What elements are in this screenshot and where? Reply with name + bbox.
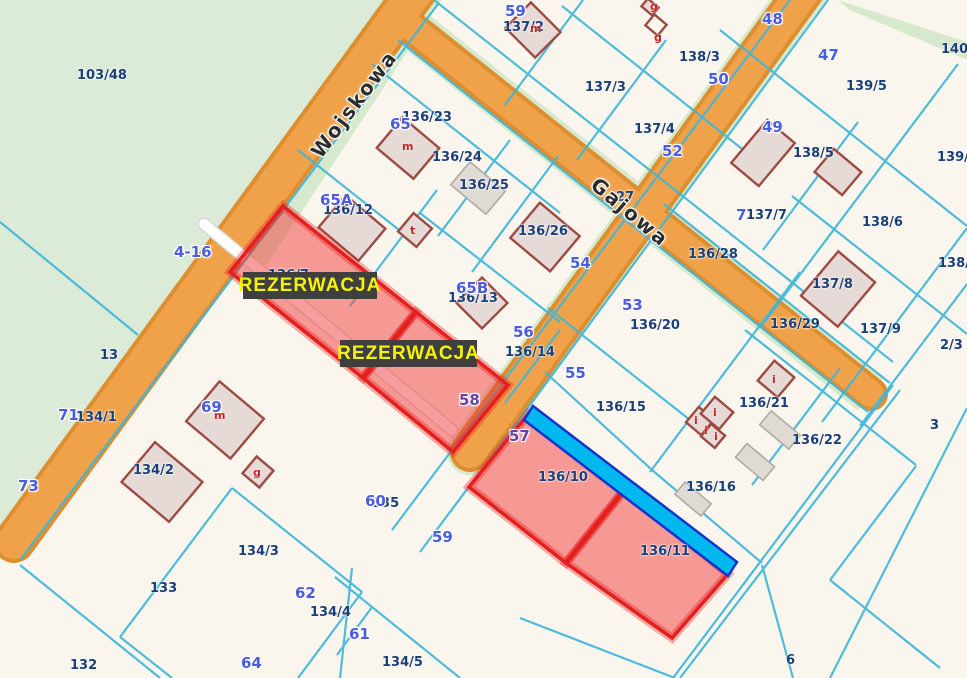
house-number-label: 47: [818, 46, 839, 64]
parcel-label: 138/5: [793, 146, 834, 161]
house-number-label: 48: [762, 10, 783, 28]
building-letter: i: [713, 406, 717, 419]
house-number-label: 59: [505, 2, 526, 20]
parcel-label: 137/9: [860, 322, 901, 337]
parcel-label: 133: [150, 581, 177, 596]
house-number-label: 58: [459, 391, 480, 409]
house-number-label: 57: [509, 427, 530, 445]
parcel-label: 139/: [937, 150, 967, 165]
house-number-label: 60: [365, 492, 386, 510]
house-number-label: 4-16: [174, 243, 212, 261]
building-letter: i: [714, 430, 718, 443]
map-graphics: [0, 0, 967, 678]
house-number-label: 53: [622, 296, 643, 314]
parcel-label: 3: [930, 418, 939, 433]
parcel-label: 134/5: [382, 655, 423, 670]
parcel-label: 134/2: [133, 463, 174, 478]
parcel-label: 136/16: [686, 480, 736, 495]
house-number-label: 61: [349, 625, 370, 643]
parcel-label: 137/4: [634, 122, 675, 137]
parcel-label: 136/20: [630, 318, 680, 333]
parcel-label: 138/3: [679, 50, 720, 65]
parcel-label: 2/3: [940, 338, 963, 353]
building-letter: i: [694, 414, 698, 427]
house-number-label: 56: [513, 323, 534, 341]
parcel-label: 137/3: [585, 80, 626, 95]
house-number-label: 55: [565, 364, 586, 382]
parcel-label: 140: [941, 42, 967, 57]
building-letter: m: [530, 22, 541, 35]
parcel-label: 103/48: [77, 68, 127, 83]
building-letter: m: [402, 140, 413, 153]
parcel-label: 137/8: [812, 277, 853, 292]
parcel-label: 136/29: [770, 317, 820, 332]
house-number-label: 59: [432, 528, 453, 546]
house-number-label: 54: [570, 254, 591, 272]
house-number-label: 73: [18, 477, 39, 495]
house-number-label: 65: [390, 115, 411, 133]
house-number-label: 7: [736, 206, 746, 224]
house-number-label: 50: [708, 70, 729, 88]
reservation-badge: REZERWACJA: [340, 340, 477, 367]
parcel-label: 136/14: [505, 345, 555, 360]
parcel-label: 138/: [938, 256, 967, 271]
building-letter: i: [772, 373, 776, 386]
parcel-label: 136/25: [459, 178, 509, 193]
parcel-label: 138/6: [862, 215, 903, 230]
parcel-label: 136/10: [538, 470, 588, 485]
parcel-label: 6: [786, 653, 795, 668]
parcel-label: 136/24: [432, 150, 482, 165]
parcel-label: 136/28: [688, 247, 738, 262]
house-number-label: 62: [295, 584, 316, 602]
house-number-label: 65B: [456, 279, 488, 297]
parcel-label: 134/4: [310, 605, 351, 620]
reservation-badge: REZERWACJA: [243, 272, 377, 299]
parcel-label: 136/22: [792, 433, 842, 448]
parcel-label: 134/1: [76, 410, 117, 425]
house-number-label: 71: [58, 406, 79, 424]
parcel-label: 134/3: [238, 544, 279, 559]
parcel-label: 136/21: [739, 396, 789, 411]
parcel-label: 136/11: [640, 544, 690, 559]
building-letter: i: [704, 424, 708, 437]
house-number-label: 69: [201, 398, 222, 416]
map-canvas[interactable]: 103/48137/2137/3138/3137/4138/5139/51401…: [0, 0, 967, 678]
parcel-label: 136/26: [518, 224, 568, 239]
building-letter: t: [410, 224, 415, 237]
parcel-label: 139/5: [846, 79, 887, 94]
parcel-label: 132: [70, 658, 97, 673]
building-letter: g: [654, 31, 662, 44]
building-letter: g: [650, 0, 658, 13]
house-number-label: 52: [662, 142, 683, 160]
house-number-label: 64: [241, 654, 262, 672]
parcel-label: 136/15: [596, 400, 646, 415]
house-number-label: 65A: [320, 191, 352, 209]
building-letter: g: [253, 466, 261, 479]
parcel-label: 137/7: [746, 208, 787, 223]
parcel-label: 13: [100, 348, 118, 363]
house-number-label: 49: [762, 118, 783, 136]
